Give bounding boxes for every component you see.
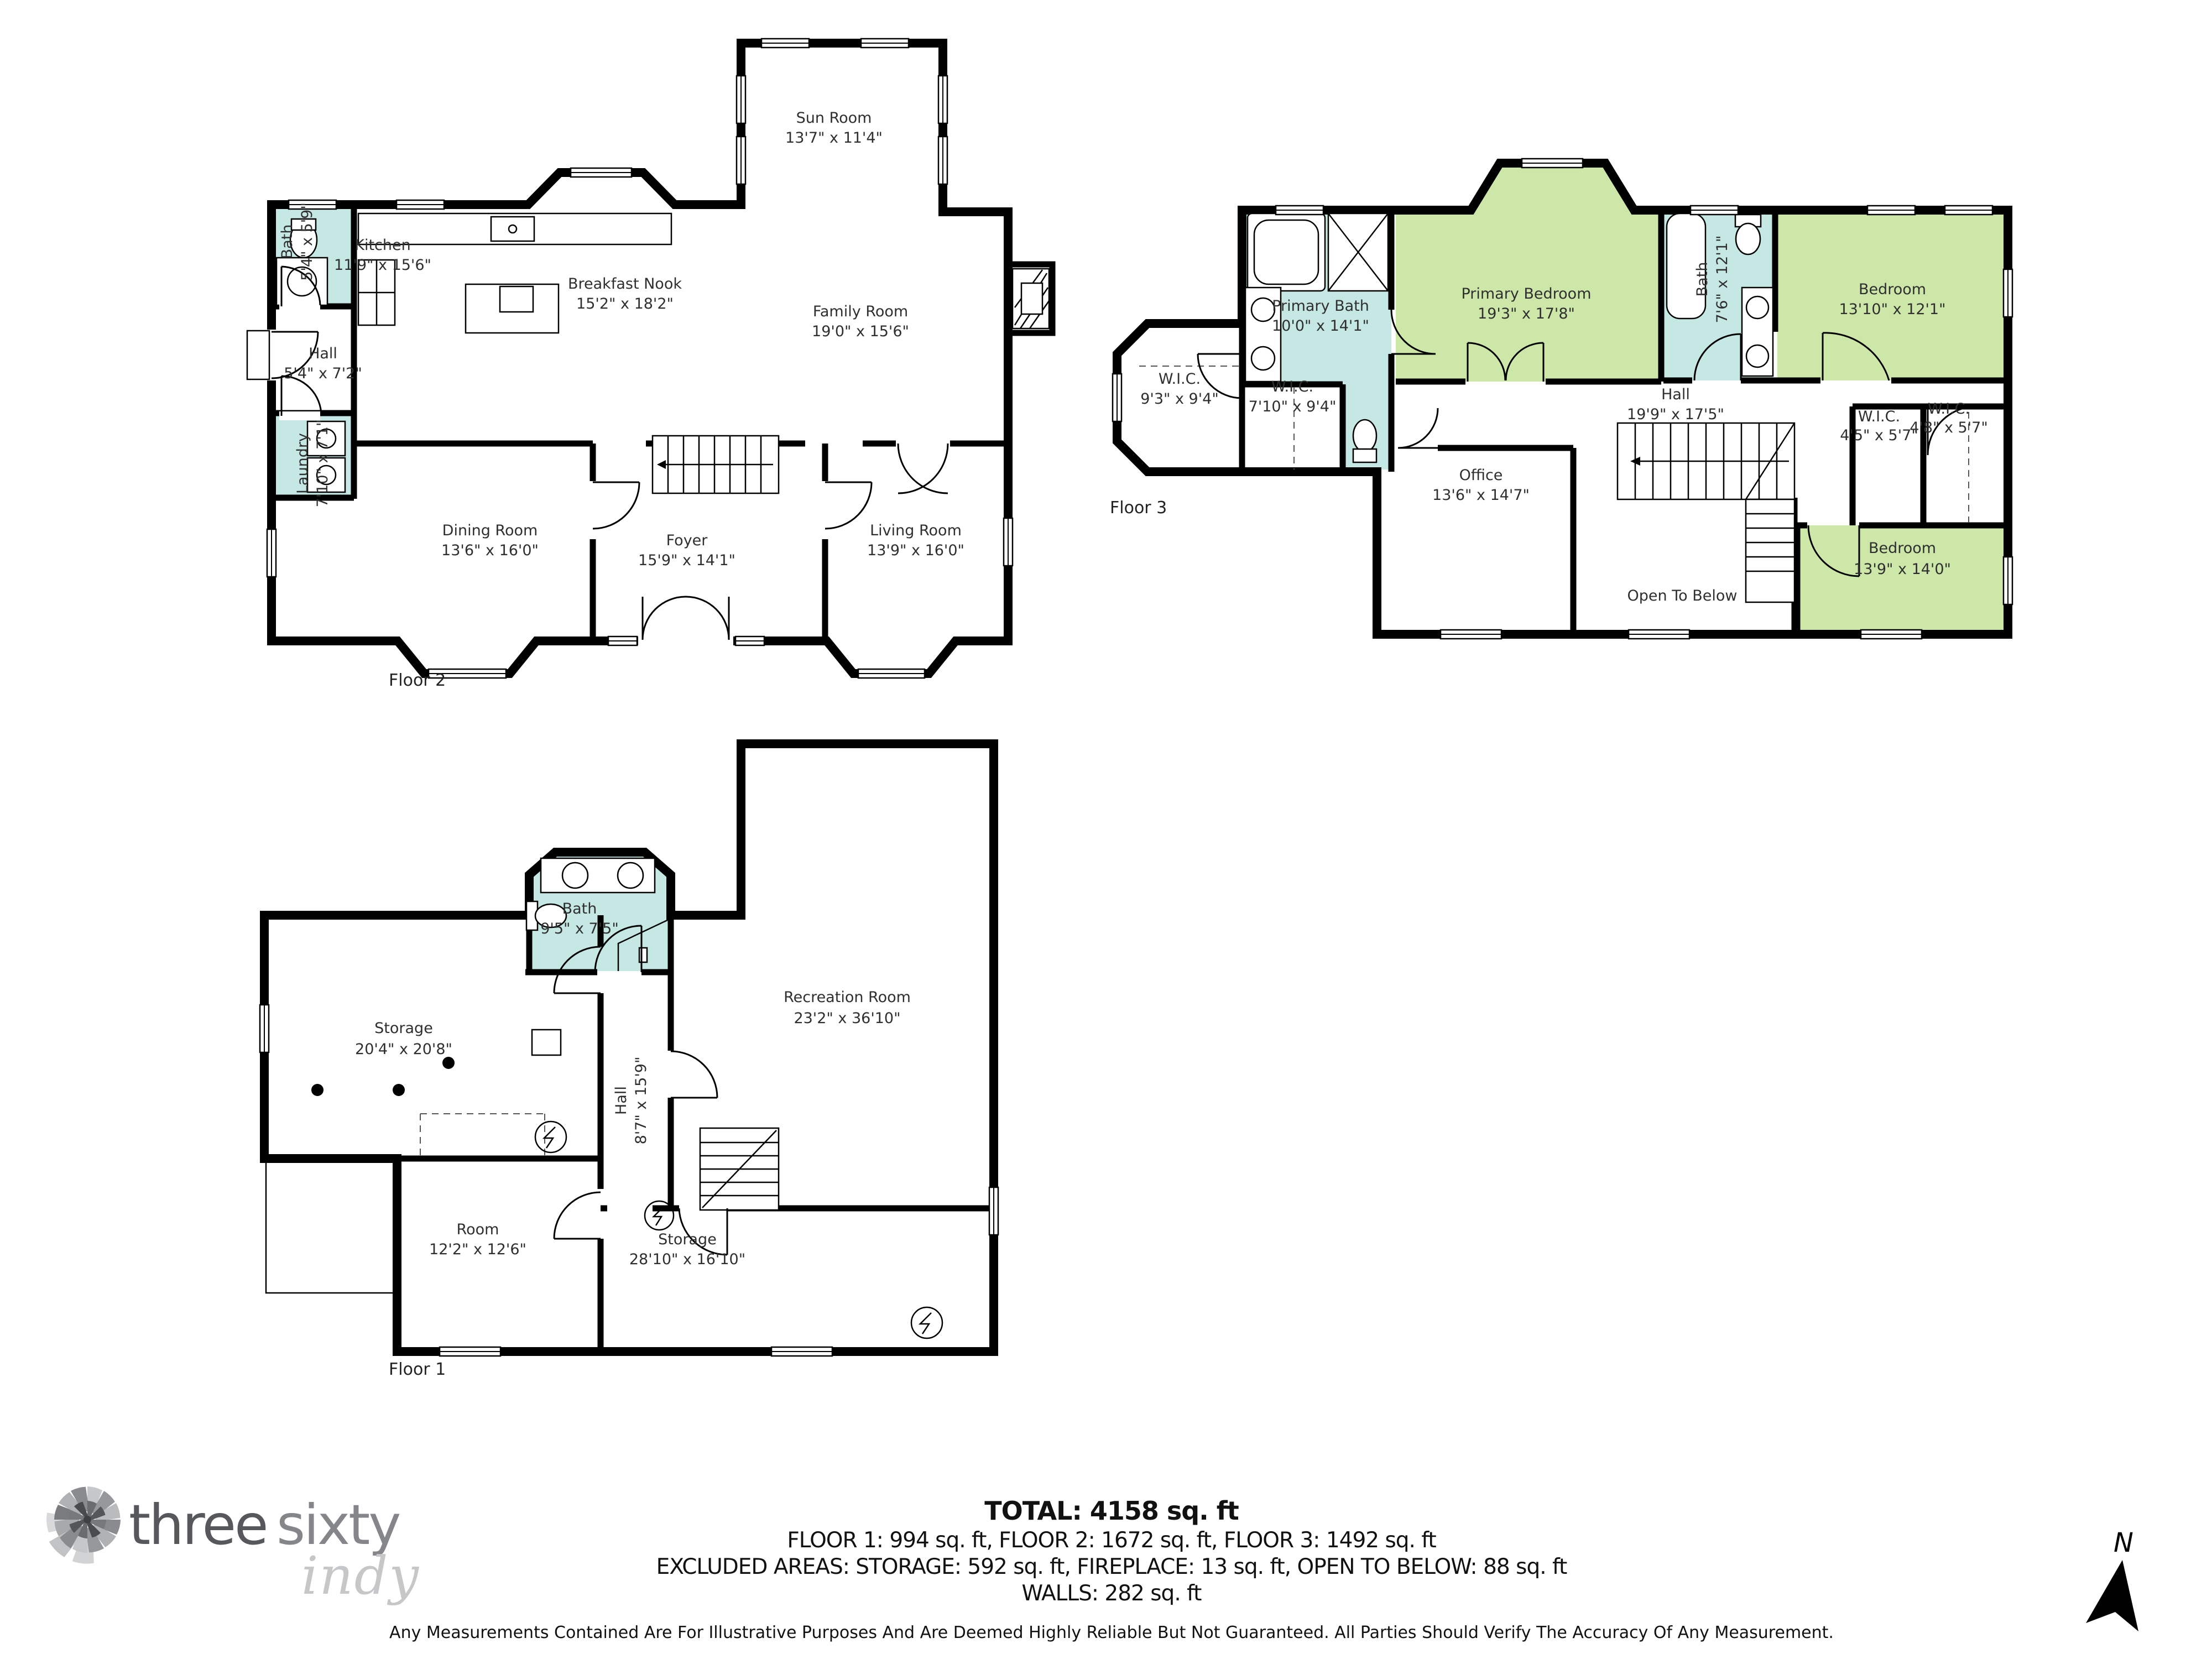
room-label-primarybath-name: Primary Bath [1272, 298, 1369, 315]
disclaimer-text: Any Measurements Contained Are For Illus… [389, 1623, 1834, 1642]
floor3-primary-bedroom-area [1396, 163, 1659, 382]
room-label-bath1-dims: 9'5" x 7'5" [540, 920, 619, 937]
north-label: N [2114, 1527, 2133, 1558]
room-label-wic48-name: W.I.C. [1928, 400, 1970, 418]
logo-word-three: three [129, 1493, 267, 1557]
room-label-bath2-name: Bath [279, 225, 296, 259]
room-label-bedroomTR-dims: 13'10" x 12'1" [1839, 301, 1945, 318]
floor2-fireplace [1008, 264, 1052, 333]
room-label-wic48-dims: 4'8" x 5'7" [1910, 419, 1988, 436]
floor2-windows [267, 39, 1013, 678]
room-label-room-dims: 12'2" x 12'6" [429, 1241, 526, 1258]
room-label-living-name: Living Room [870, 522, 962, 539]
floor-1-label: Floor 1 [389, 1360, 446, 1379]
summary-block: TOTAL: 4158 sq. ft FLOOR 1: 994 sq. ft, … [389, 1496, 1834, 1642]
room-label-wic93-name: W.I.C. [1159, 371, 1201, 388]
room-label-storage1-dims: 20'4" x 20'8" [355, 1041, 452, 1058]
floor-3-label: Floor 3 [1110, 498, 1167, 518]
summary-floors: FLOOR 1: 994 sq. ft, FLOOR 2: 1672 sq. f… [787, 1528, 1436, 1553]
logo-word-indy: indy [301, 1546, 420, 1606]
room-label-hall3-name: Hall [1661, 386, 1690, 403]
room-label-office-dims: 13'6" x 14'7" [1432, 487, 1530, 504]
room-label-wic45-name: W.I.C. [1858, 408, 1900, 425]
room-label-wic710-dims: 7'10" x 9'4" [1249, 398, 1337, 415]
north-arrow: N [2086, 1527, 2138, 1631]
room-label-primarybath-dims: 10'0" x 14'1" [1272, 317, 1369, 335]
floor2-exterior-walls [272, 43, 1008, 674]
floor1-ceiling-lights [311, 1057, 455, 1096]
floorplan-page: Bath 5'4" x 5'9" Kitchen 11'9" x 15'6" B… [0, 0, 2212, 1659]
room-label-bath3-dims: 7'6" x 12'1" [1714, 236, 1731, 324]
electrical-symbol-3 [911, 1307, 942, 1338]
room-label-opentobelow: Open To Below [1627, 587, 1738, 604]
room-label-kitchen-dims: 11'9" x 15'6" [334, 257, 431, 274]
room-label-laundry-name: Laundry [294, 433, 311, 494]
room-label-dining-name: Dining Room [442, 522, 538, 539]
floor-2-label: Floor 2 [389, 671, 446, 690]
room-label-bath2-dims: 5'4" x 5'9" [299, 202, 316, 281]
room-label-hall2-dims: 5'4" x 7'2" [284, 365, 362, 382]
floor1-interior-walls [397, 915, 994, 1352]
room-label-foyer-dims: 15'9" x 14'1" [638, 552, 735, 569]
room-label-breakfast-name: Breakfast Nook [568, 275, 682, 293]
room-label-dining-dims: 13'6" x 16'0" [441, 542, 539, 559]
electrical-symbol-1 [535, 1121, 566, 1152]
summary-walls: WALLS: 282 sq. ft [1022, 1581, 1202, 1606]
room-label-bedroomBR-dims: 13'9" x 14'0" [1854, 561, 1951, 578]
floorplan-canvas: Bath 5'4" x 5'9" Kitchen 11'9" x 15'6" B… [0, 0, 2212, 1659]
floor1-equipment-box [532, 1030, 561, 1055]
room-label-storage2-dims: 28'10" x 16'10" [629, 1251, 745, 1268]
pinwheel-icon [44, 1484, 123, 1569]
room-label-foyer-name: Foyer [666, 532, 708, 549]
room-label-wic710-name: W.I.C. [1271, 378, 1313, 395]
room-label-sunroom-name: Sun Room [796, 109, 872, 127]
room-label-room-name: Room [457, 1221, 499, 1238]
room-label-office-name: Office [1459, 467, 1503, 484]
room-label-hall1-name: Hall [613, 1086, 630, 1115]
room-label-wic45-dims: 4'5" x 5'7" [1840, 427, 1918, 444]
room-label-hall2-name: Hall [309, 345, 337, 362]
room-label-recreation-dims: 23'2" x 36'10" [794, 1010, 900, 1027]
room-label-wic93-dims: 9'3" x 9'4" [1140, 390, 1219, 408]
room-label-hall1-dims: 8'7" x 15'9" [633, 1057, 650, 1145]
room-label-storage2-name: Storage [658, 1231, 717, 1248]
room-label-bath1-name: Bath [562, 900, 597, 917]
floor1-dashed-opening [420, 1114, 545, 1156]
room-label-primarybed-name: Primary Bedroom [1461, 285, 1591, 302]
floor-2-plan: Bath 5'4" x 5'9" Kitchen 11'9" x 15'6" B… [247, 39, 1052, 690]
floor1-stairs [700, 1128, 779, 1210]
room-label-sunroom-dims: 13'7" x 11'4" [785, 129, 883, 147]
room-label-bedroomTR-name: Bedroom [1859, 281, 1926, 298]
floor-3-plan: Primary Bath 10'0" x 14'1" W.I.C. 9'3" x… [1110, 159, 2012, 639]
room-label-primarybed-dims: 19'3" x 17'8" [1478, 305, 1575, 322]
floor2-stairs [653, 436, 779, 493]
room-label-bedroomBR-name: Bedroom [1869, 540, 1936, 557]
floor-1-plan: Bath 9'5" x 7'5" Storage 20'4" x 20'8" H… [260, 744, 998, 1379]
room-label-kitchen-name: Kitchen [354, 237, 410, 254]
summary-total: TOTAL: 4158 sq. ft [984, 1496, 1238, 1526]
floor3-closet-lines [1139, 366, 1969, 523]
north-arrow-icon [2086, 1560, 2138, 1631]
summary-excluded: EXCLUDED AREAS: STORAGE: 592 sq. ft, FIR… [656, 1554, 1567, 1579]
floor1-porch [266, 1160, 395, 1293]
room-label-recreation-name: Recreation Room [784, 989, 911, 1006]
room-label-family-dims: 19'0" x 15'6" [812, 323, 909, 340]
room-label-family-name: Family Room [813, 303, 908, 320]
room-label-living-dims: 13'9" x 16'0" [867, 542, 964, 559]
room-label-laundry-dims: 7'10" x 7'1" [314, 420, 331, 508]
room-label-breakfast-dims: 15'2" x 18'2" [576, 295, 674, 312]
floor3-stairs [1618, 423, 1794, 602]
room-label-storage1-name: Storage [374, 1020, 433, 1037]
threesixty-logo: three sixty indy [44, 1484, 420, 1606]
room-label-bath3-name: Bath [1694, 262, 1711, 297]
room-label-hall3-dims: 19'9" x 17'5" [1627, 406, 1724, 423]
